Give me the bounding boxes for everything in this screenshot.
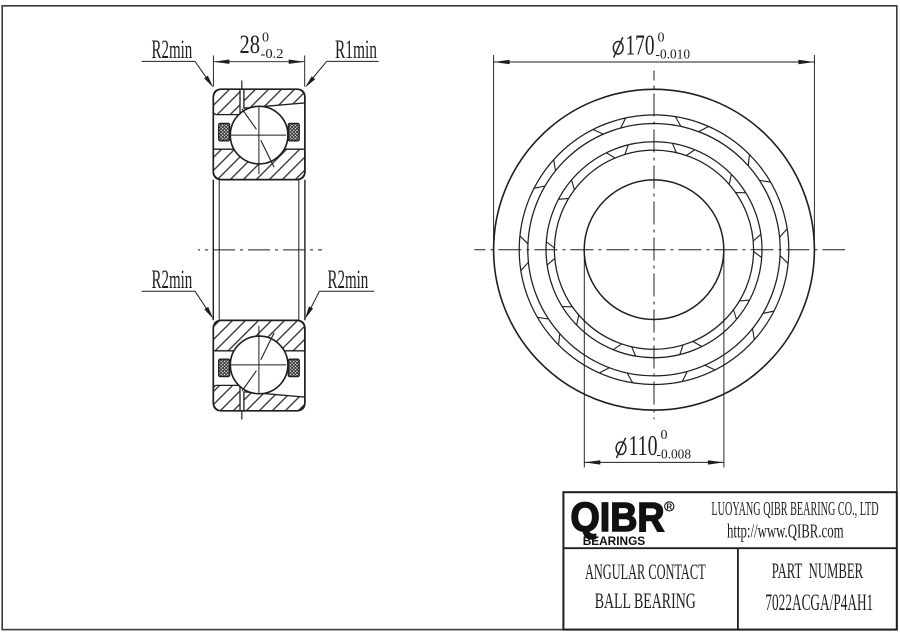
svg-text:110: 110 <box>629 430 658 462</box>
svg-text:28: 28 <box>240 29 261 59</box>
svg-text:7022ACGA/P4AH1: 7022ACGA/P4AH1 <box>765 590 873 616</box>
svg-text:170: 170 <box>626 30 655 62</box>
svg-text:LUOYANG QIBR BEARING CO., LTD: LUOYANG QIBR BEARING CO., LTD <box>711 498 878 520</box>
svg-text:-0.008: -0.008 <box>657 448 692 463</box>
svg-text:0: 0 <box>661 428 668 443</box>
svg-text:-0.010: -0.010 <box>656 47 691 62</box>
svg-text:BALL BEARING: BALL BEARING <box>595 588 696 613</box>
svg-text:ANGULAR CONTACT: ANGULAR CONTACT <box>585 559 706 584</box>
svg-text:http://www.QIBR.com: http://www.QIBR.com <box>727 521 844 543</box>
svg-text:R2min: R2min <box>152 265 193 294</box>
svg-text:R2min: R2min <box>152 35 193 64</box>
svg-text:PART NUMBER: PART NUMBER <box>772 558 863 583</box>
svg-text:0: 0 <box>262 31 269 46</box>
svg-text:BEARINGS: BEARINGS <box>583 534 646 548</box>
svg-text:R: R <box>666 502 672 511</box>
svg-text:0: 0 <box>658 31 665 46</box>
svg-text:R2min: R2min <box>328 265 369 294</box>
svg-text:-0.2: -0.2 <box>261 47 284 62</box>
svg-text:R1min: R1min <box>335 35 377 64</box>
